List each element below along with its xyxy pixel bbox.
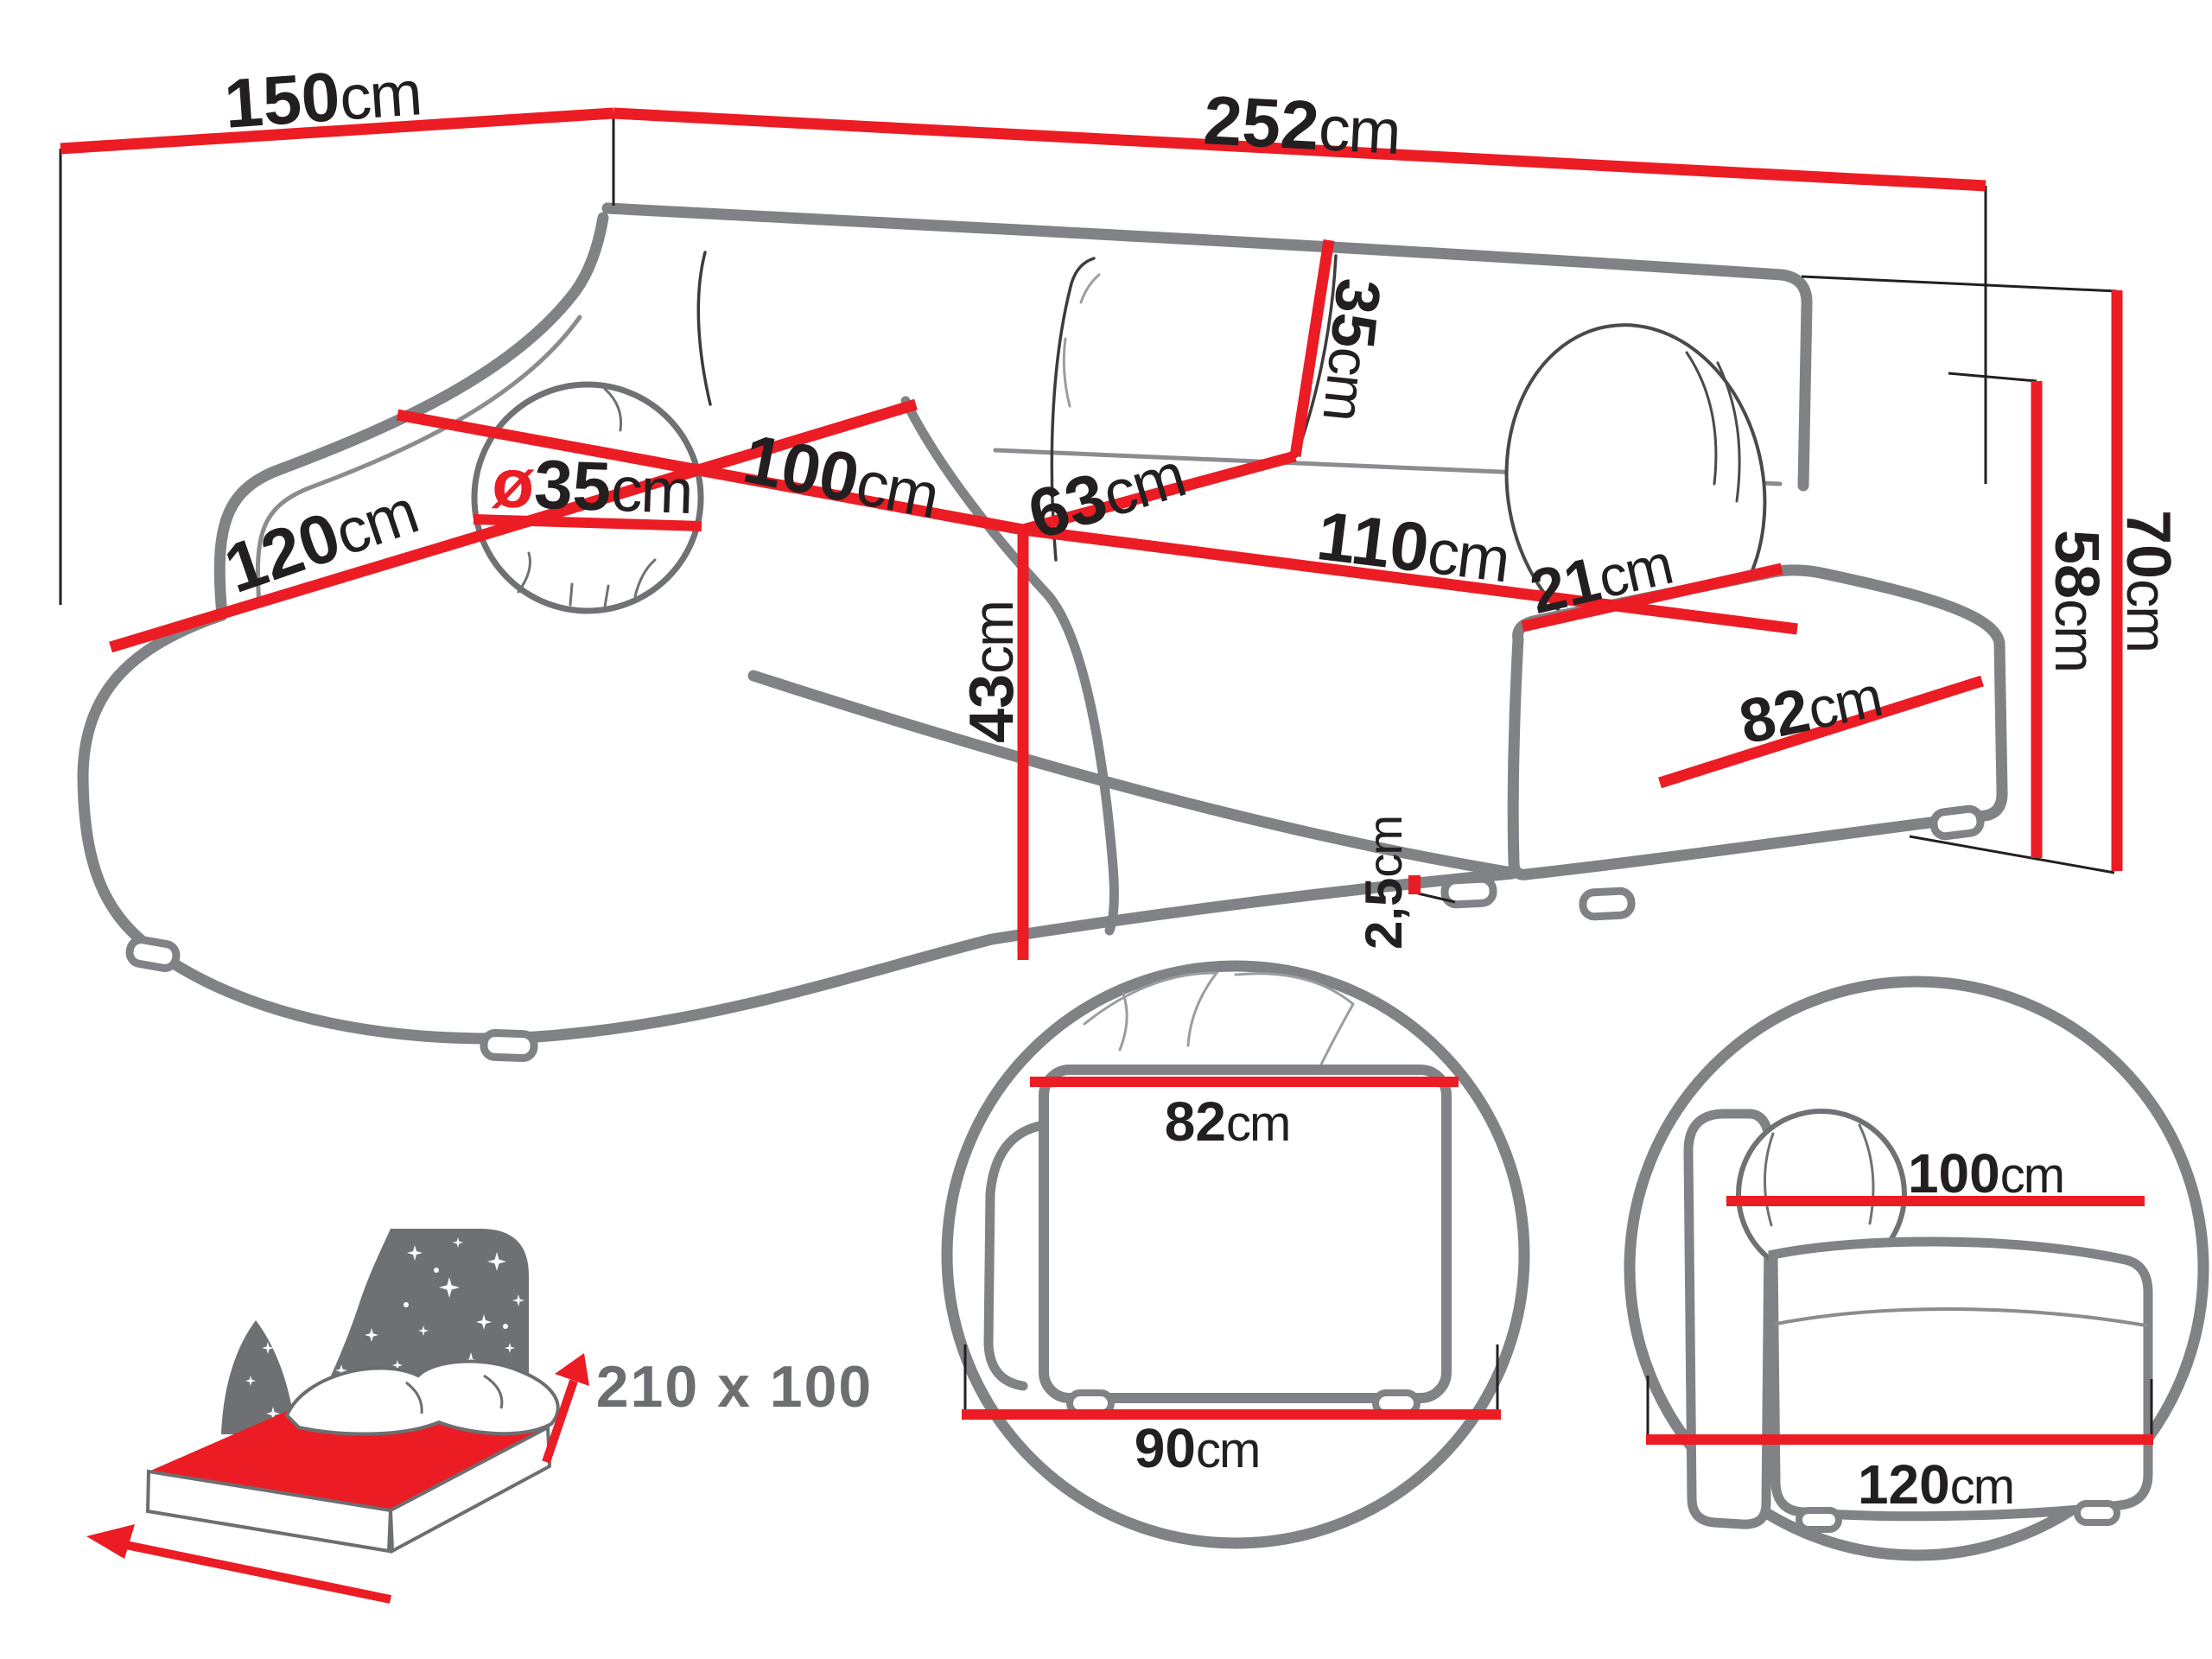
dim-label-150cm: 150cm	[222, 52, 423, 143]
dim-label-100cm-detail: 100cm	[1908, 1142, 2063, 1205]
front-view-foot	[1799, 1510, 1839, 1529]
detail-circle-side-view: 82cm 90cm	[947, 966, 1524, 1543]
dim-label-252cm: 252cm	[1202, 81, 1402, 168]
dim-label-100cm: 100cm	[737, 420, 944, 533]
dim-label-110cm: 110cm	[1313, 497, 1514, 596]
sofa-foot	[1582, 891, 1631, 918]
bed-pillows	[287, 1362, 558, 1434]
ext-58-top	[1948, 373, 2037, 381]
sofa-foot	[128, 938, 178, 970]
dim-label-70cm: 70cm	[2113, 510, 2183, 652]
sofa-foot	[484, 1033, 535, 1058]
cushion-wrinkle-1	[1064, 339, 1070, 406]
dim-label-82cm-detail: 82cm	[1165, 1090, 1290, 1153]
dim-label-120cm-detail: 120cm	[1858, 1453, 2013, 1516]
dim-label-pillow-diameter: ø35cm	[491, 444, 693, 528]
dim-label-2-5cm: 2,5cm	[1355, 817, 1413, 950]
front-view-foot	[2077, 1503, 2117, 1522]
dim-label-58cm: 58cm	[2042, 530, 2111, 671]
main-sofa-drawing	[83, 208, 2002, 1058]
cushion-wrinkle-2	[1081, 275, 1099, 302]
bed-pictogram: 210 x 100	[86, 1229, 873, 1599]
dim-label-90cm-detail: 90cm	[1135, 1417, 1260, 1479]
diagram-page: 150cm 252cm ø35cm 120cm 100cm 63cm 110cm…	[0, 0, 2212, 1659]
chaise-body	[83, 615, 992, 1039]
ext-70-bottom	[1910, 836, 2114, 873]
dim-label-43cm: 43cm	[957, 601, 1027, 743]
ext-70-top	[1802, 276, 2117, 291]
seat-bottom-edge	[992, 874, 1512, 939]
left-cushion-hint	[698, 252, 710, 404]
detail-circle-front-view: 100cm 120cm	[1630, 982, 2203, 1555]
sofa-dimension-diagram: 150cm 252cm ø35cm 120cm 100cm 63cm 110cm…	[0, 0, 2212, 1659]
arrow-head-length	[86, 1524, 135, 1559]
sofa-foot	[1932, 808, 1981, 837]
dim-label-35cm: 35cm	[1310, 276, 1394, 424]
bed-size-label: 210 x 100	[596, 1354, 874, 1420]
